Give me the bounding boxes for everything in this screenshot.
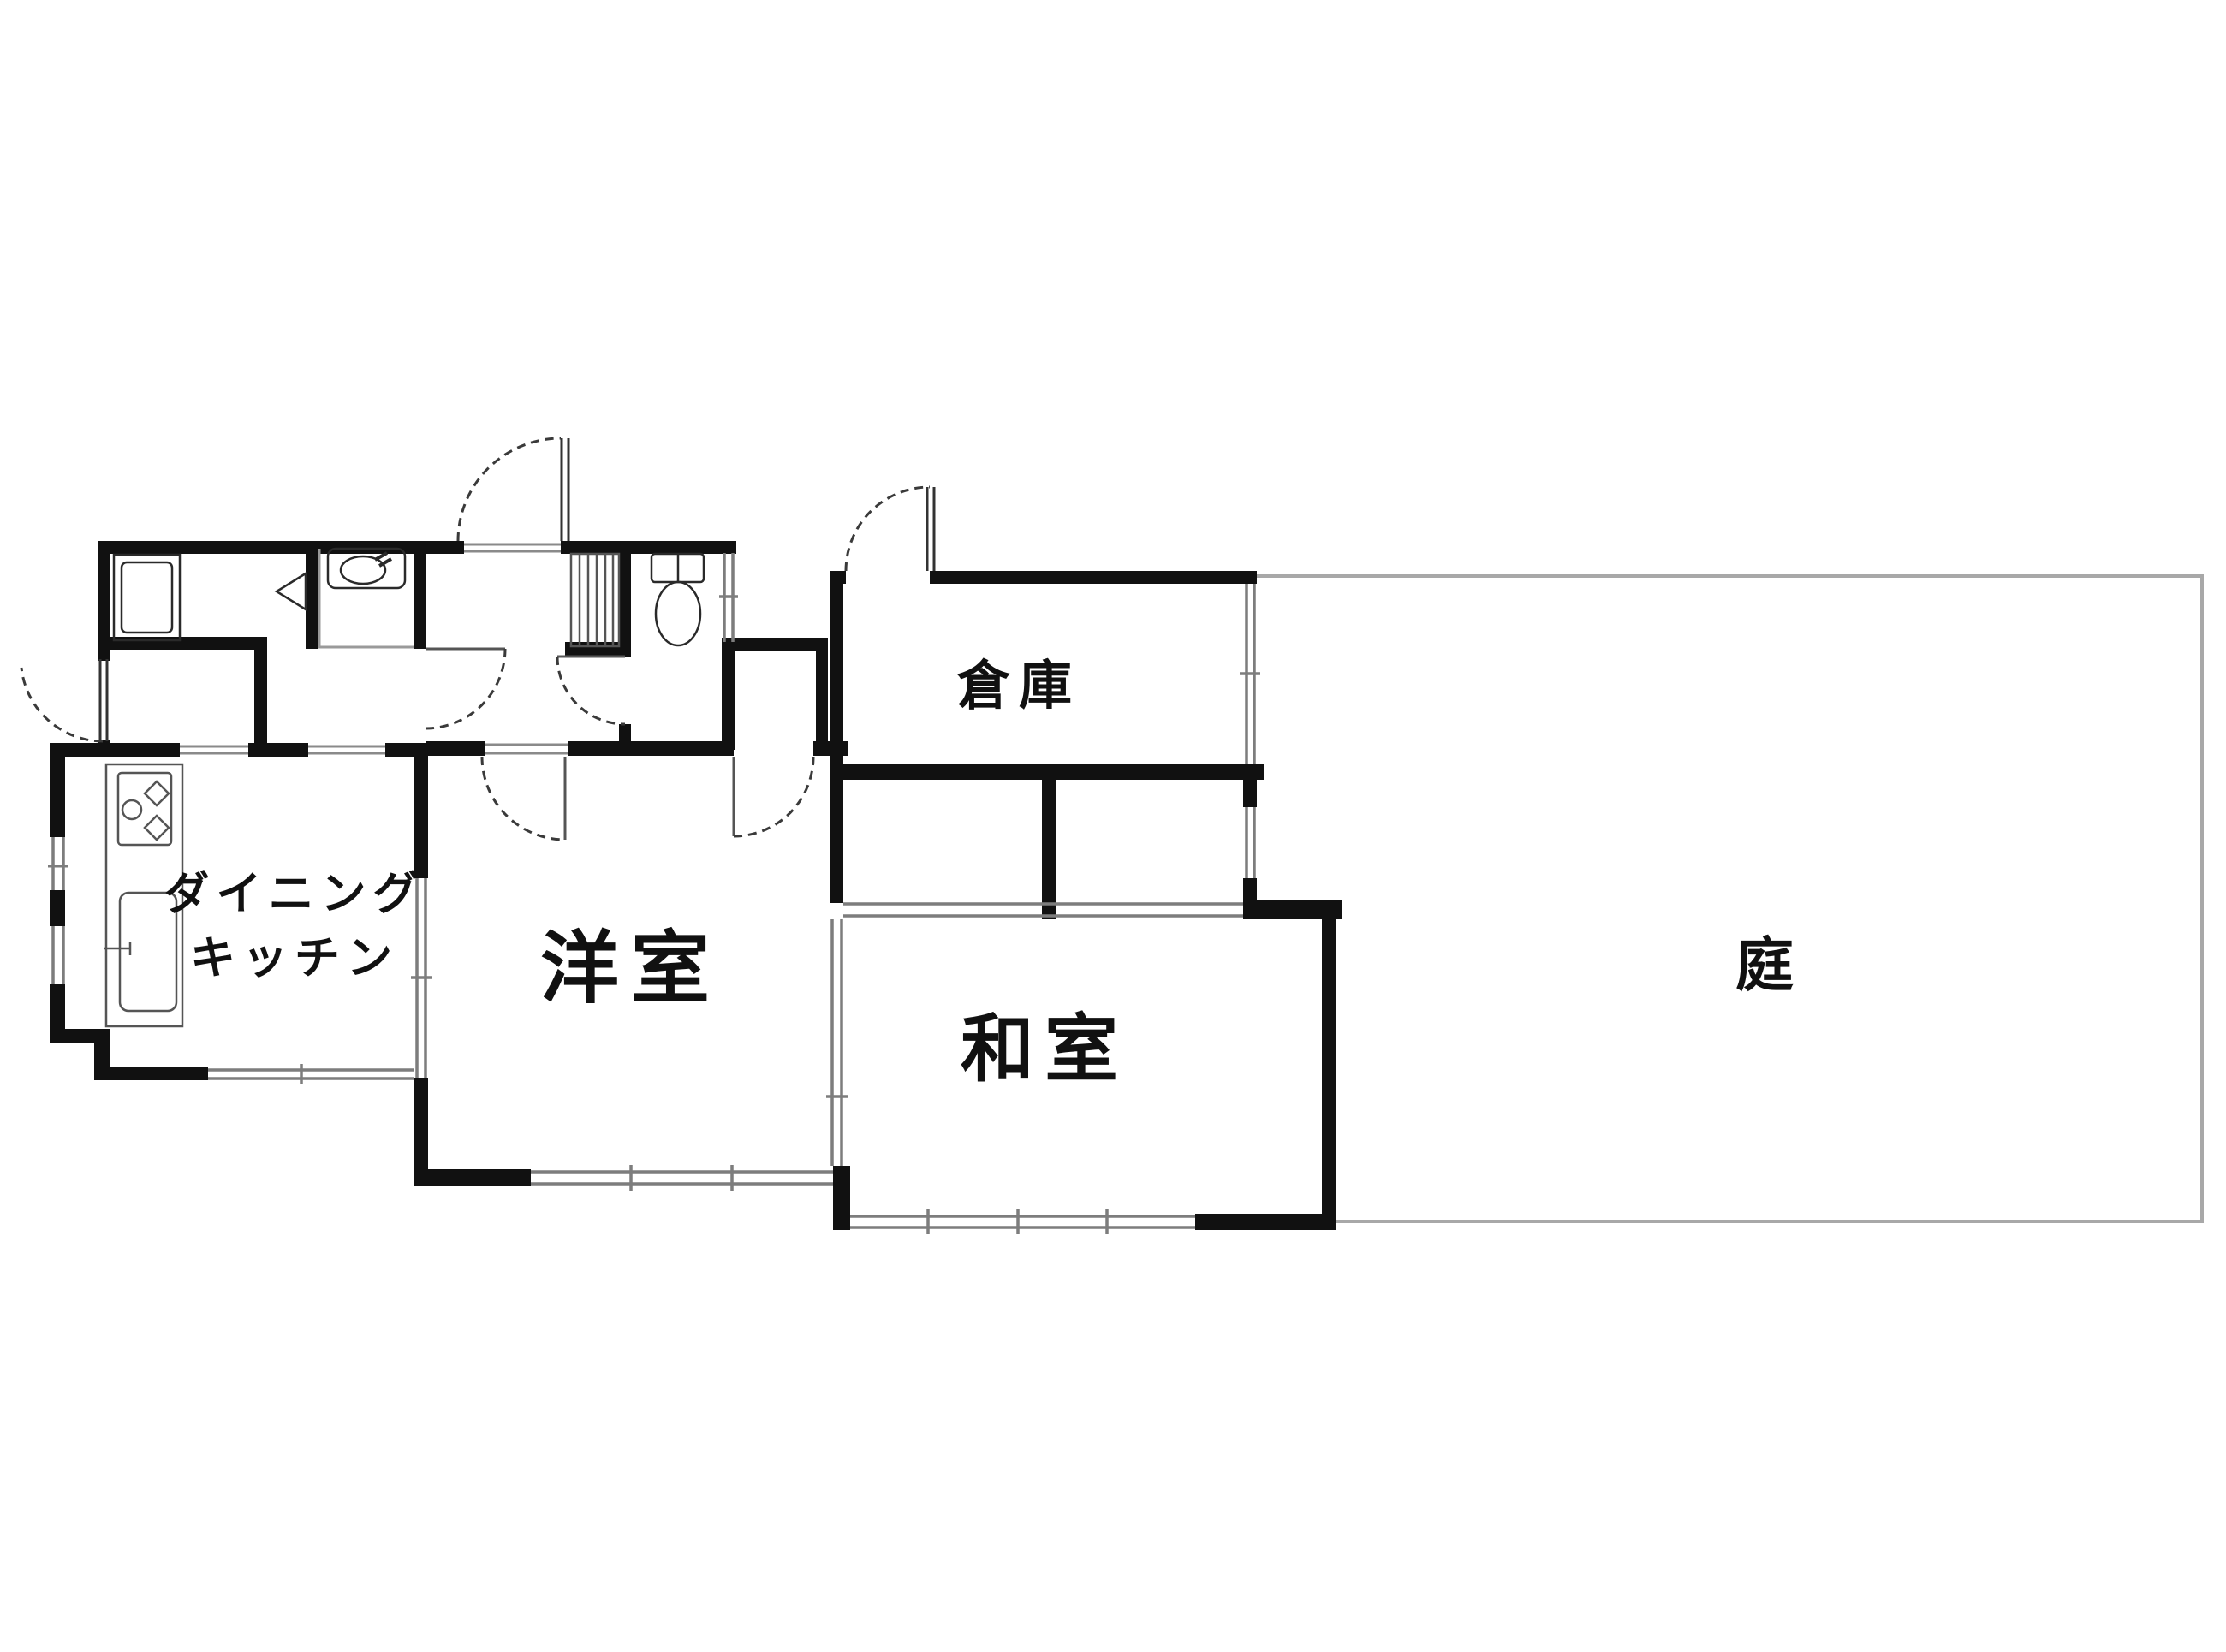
washing-machine-icon [114, 555, 180, 640]
room-label-western-room: 洋室 [540, 930, 722, 1008]
washroom-door [426, 649, 505, 728]
floor-plan-page: 倉庫 庭 洋室 和室 ダイニング キッチン [0, 0, 2226, 1652]
washbasin-icon [328, 549, 405, 588]
dining-kitchen-line2: キッチン [164, 936, 426, 981]
room-label-dining-kitchen: ダイニング キッチン [164, 871, 426, 981]
entrance-door [458, 438, 568, 541]
room-label-storage: 倉庫 [957, 660, 1080, 713]
back-door [21, 659, 107, 741]
stove-icon [118, 773, 171, 845]
room-label-garden: 庭 [1735, 936, 1795, 995]
toilet-icon [652, 554, 704, 645]
floor-plan-drawing [0, 0, 2226, 1652]
toilet-door [557, 657, 625, 724]
dining-kitchen-line1: ダイニング [164, 871, 426, 917]
door-pivot-icon [277, 573, 306, 609]
storage-door [846, 487, 934, 571]
room-label-japanese-room: 和室 [961, 1013, 1128, 1086]
western-room-door [482, 757, 565, 840]
shoe-shelf-icon [571, 554, 619, 646]
closet-door [734, 757, 813, 836]
garden-outline [1257, 576, 2202, 1221]
